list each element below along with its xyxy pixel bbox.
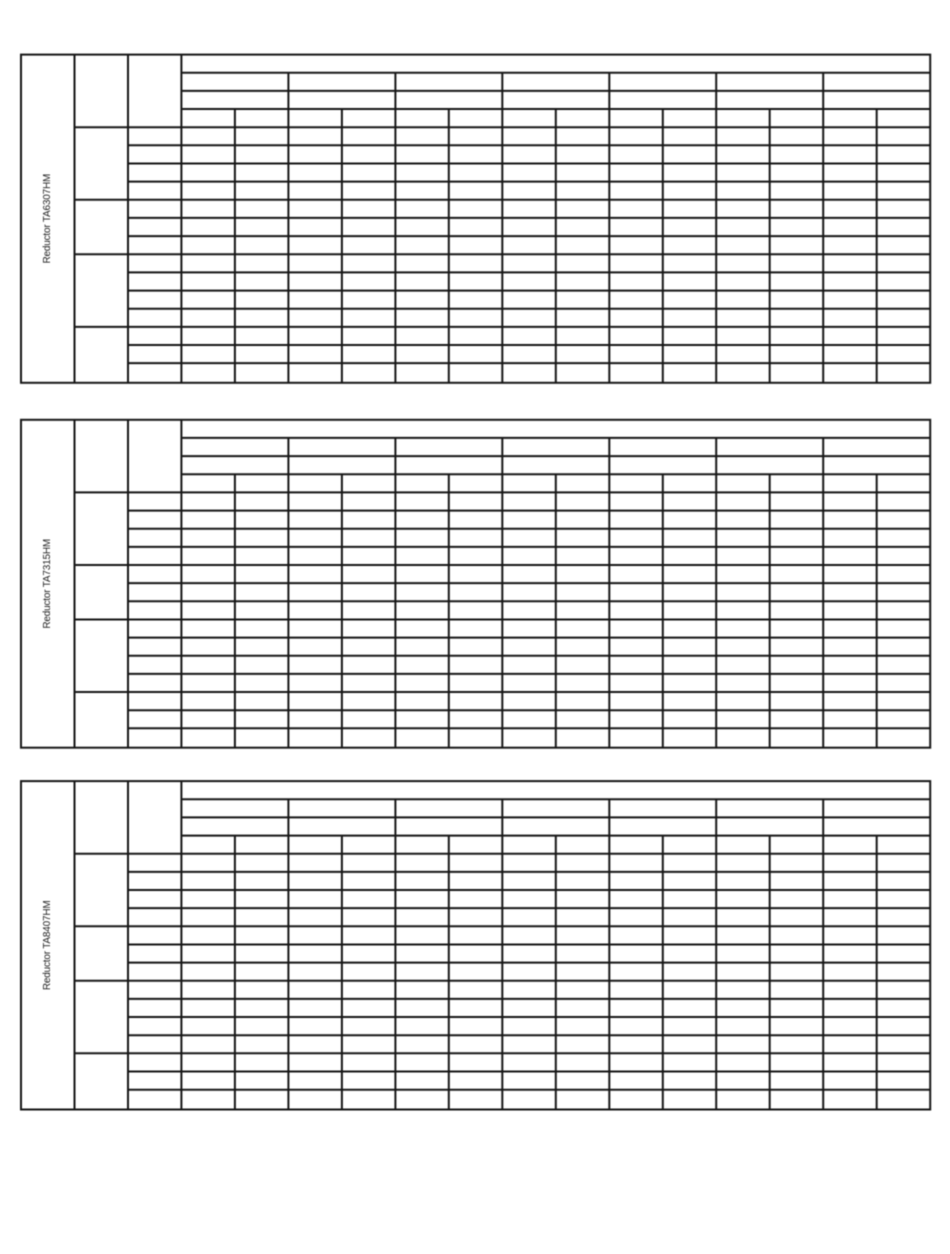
svg-text:Reductor TA7315HM: Reductor TA7315HM [42,539,53,629]
svg-text:Reductor TA8407HM: Reductor TA8407HM [42,900,53,990]
svg-text:Reductor TA6307HM: Reductor TA6307HM [42,174,53,264]
